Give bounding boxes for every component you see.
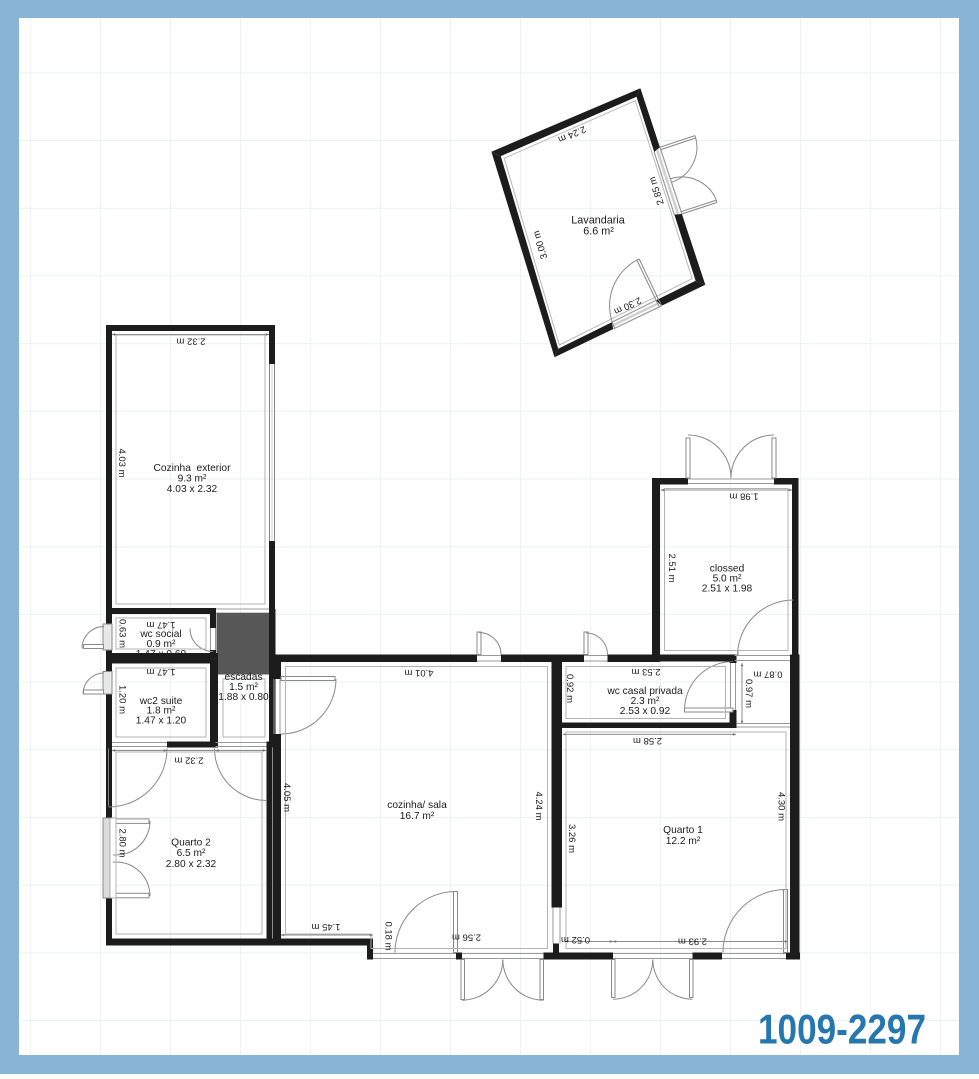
svg-text:0.52 m: 0.52 m [561,934,590,945]
svg-text:2.53 m: 2.53 m [631,666,660,677]
svg-text:2.80 m: 2.80 m [117,828,128,857]
svg-text:3.26 m: 3.26 m [566,824,577,853]
svg-text:2.58 m: 2.58 m [633,735,662,746]
svg-text:2.80 x 2.32: 2.80 x 2.32 [166,859,217,870]
svg-text:0.97 m: 0.97 m [743,679,754,708]
svg-text:0.63 m: 0.63 m [117,619,128,648]
svg-text:1.98 m: 1.98 m [729,491,758,502]
svg-text:9.3 m²: 9.3 m² [178,474,207,485]
svg-text:0.87 m: 0.87 m [753,669,782,680]
svg-text:2.32 m: 2.32 m [176,336,205,347]
svg-text:Cozinha exterior: Cozinha exterior [153,463,231,474]
svg-text:12.2 m²: 12.2 m² [666,836,701,847]
svg-text:2.32 m: 2.32 m [174,754,203,765]
svg-text:1.45 m: 1.45 m [311,921,340,932]
svg-text:1.88 x 0.80: 1.88 x 0.80 [218,692,269,703]
svg-text:1.47 m: 1.47 m [146,666,175,677]
svg-text:6.5 m²: 6.5 m² [177,848,206,859]
svg-text:4.03 x 2.32: 4.03 x 2.32 [167,484,218,495]
svg-text:4.24 m: 4.24 m [533,791,544,820]
svg-text:2.51 m: 2.51 m [666,553,677,582]
svg-text:Quarto 1: Quarto 1 [663,825,703,836]
svg-text:6.6 m²: 6.6 m² [583,226,614,238]
svg-text:4.03 m: 4.03 m [116,448,127,477]
svg-text:1009-2297: 1009-2297 [758,1006,926,1053]
svg-text:Quarto 2: Quarto 2 [171,838,211,849]
svg-text:16.7 m²: 16.7 m² [400,811,435,822]
svg-text:2.51 x 1.98: 2.51 x 1.98 [702,584,753,595]
svg-text:2.53 x 0.92: 2.53 x 0.92 [620,706,671,717]
svg-text:4.05 m: 4.05 m [281,783,292,812]
svg-text:2.56 m: 2.56 m [452,932,481,943]
svg-text:1.20 m: 1.20 m [117,685,128,714]
svg-text:4.01 m: 4.01 m [404,667,433,678]
svg-text:0.92 m: 0.92 m [564,674,575,703]
svg-text:1.47 m: 1.47 m [146,619,175,630]
svg-text:cozinha/ sala: cozinha/ sala [387,800,447,811]
svg-text:1.47 x 1.20: 1.47 x 1.20 [136,716,187,727]
svg-text:4.30 m: 4.30 m [776,792,787,821]
svg-text:2.93 m: 2.93 m [678,936,707,947]
svg-text:0.18 m: 0.18 m [383,921,394,950]
